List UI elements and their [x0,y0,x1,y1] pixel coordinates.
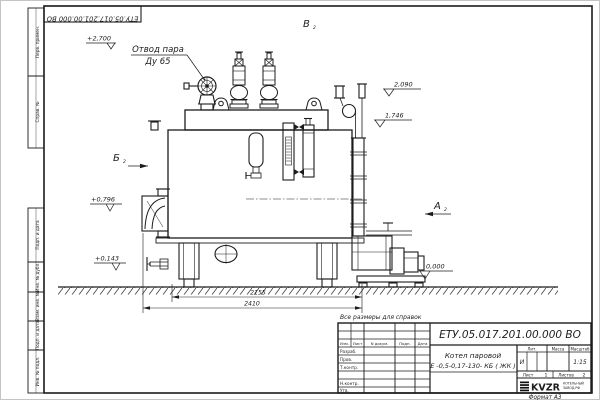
sheets-label: Листов [558,373,574,378]
role-prov: Пров. [340,357,352,362]
logo-text: KVZR [531,383,561,394]
steam-outlet-label-1: Отвод пара [132,45,184,55]
elev-1746: 1,746 [385,112,404,120]
view-v-label: В [303,19,310,30]
col-data: Дата [418,341,428,346]
view-a-sub: 2 [444,207,447,213]
elev-0143: +0,143 [95,255,119,263]
elev-0000: 0,000 [426,263,445,271]
stamp-inv-podl: Инв. № подл. [35,357,41,387]
stamp-perv-primen: Перв. примен. [35,26,41,58]
ground-hatch [58,288,558,295]
stamp-vzam-inv: Взам. инв. № [35,291,41,321]
view-v-sub: 2 [313,25,316,31]
view-b-label: Б [113,153,120,164]
role-nkontr: Н.контр. [340,381,359,386]
product-name-2: Е -0,5-0,17-130- КБ ( ЖК ) [430,362,515,370]
sheet-label: Лист [523,373,534,378]
stamp-sprav-no: Справ. № [35,101,41,122]
view-b-sub: 2 [123,159,126,165]
steam-outlet-label-2: Ду 65 [144,57,170,67]
scale-label: Масштаб [570,347,590,352]
mass-label: Масса [552,347,565,352]
reference-note: Все размеры для справок [340,314,422,321]
col-list: Лист [353,341,363,346]
elev-0796: +0,796 [91,196,115,204]
drawing-sheet: Перв. примен. Справ. № Подп. и дата Инв.… [0,0,600,400]
col-ndokum: N докум. [371,341,389,346]
role-tkontr: Т.контр. [339,365,358,370]
product-name-1: Котел паровой [445,351,502,360]
stamp-podp-data-1: Подп. и дата [35,220,41,250]
sheet-value: 1 [545,373,548,379]
logo-sub-2: ЗАВОД.РФ [563,386,580,390]
scale-value: 1:15 [573,359,587,366]
lit-label: Лит. [527,347,536,352]
boiler-ga-drawing: Перв. примен. Справ. № Подп. и дата Инв.… [0,0,600,400]
view-a-label: А [433,201,441,212]
col-podp: Подп. [399,341,411,346]
dim-2410: 2410 [244,301,260,308]
format-label: Формат А3 [528,395,561,400]
stamp-inv-dubl: Инв. № дубл. [35,262,41,291]
top-stamp-text: ЕТУ.05.017.201.00.000 ВО [46,15,138,23]
elev-2700: +2,700 [87,35,111,43]
col-izm: Изм. [340,341,349,346]
stamp-podp-data-2: Подп. и дата [35,321,41,351]
lit-value: И [520,359,525,366]
sheets-value: 2 [583,373,586,379]
elev-2090: 2,090 [394,81,413,89]
role-utv: Утв. [340,388,349,393]
doc-number: ЕТУ.05.017.201.00.000 ВО [439,329,581,341]
logo-sub-1: КОТЕЛЬНЫЙ [563,381,585,386]
dim-2155: 2155 [250,290,266,297]
role-razrab: Разраб. [340,349,356,354]
